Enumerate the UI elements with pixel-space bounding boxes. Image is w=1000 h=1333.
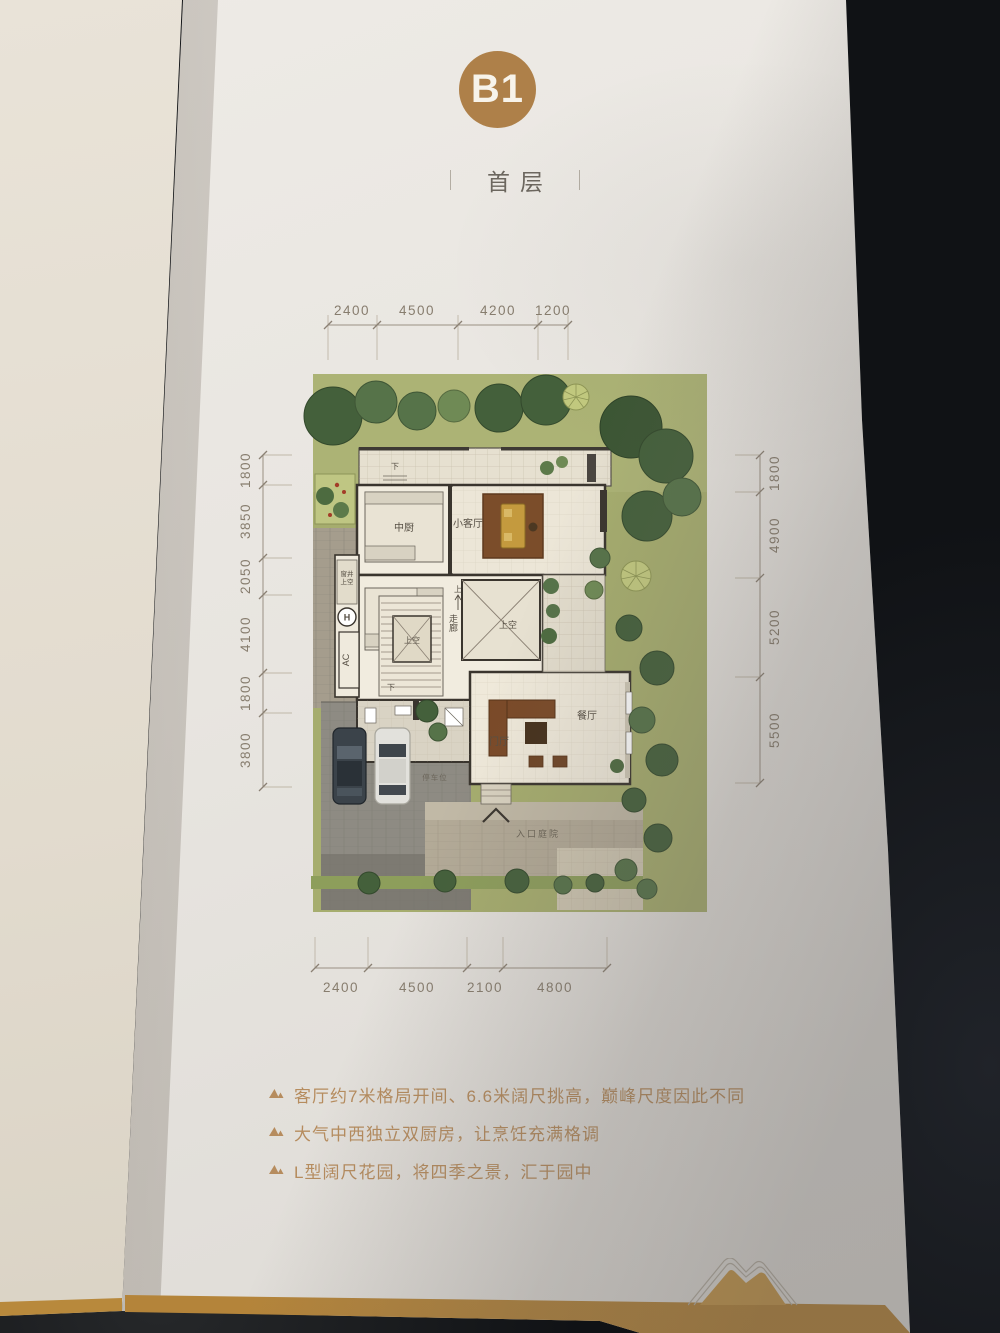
small-living-label: 小客厅: [453, 517, 483, 530]
dim-right-2: 4900: [767, 517, 782, 553]
bullet-item-3: L型阔尺花园，将四季之景，汇于园中: [268, 1158, 828, 1179]
mountain-bullet-icon: [268, 1087, 284, 1098]
terrace-down-label: 下: [391, 462, 399, 471]
window-well-label-2: 上空: [341, 577, 355, 586]
mountain-logo: [688, 1258, 800, 1306]
dim-bottom-3: 2100: [467, 980, 503, 995]
dim-bottom-2: 4500: [399, 980, 435, 995]
dim-top-2: 4500: [399, 303, 435, 318]
unit-badge-label: B1: [471, 67, 524, 112]
small-living-room: 小客厅: [452, 487, 607, 573]
dim-left-4: 4100: [238, 616, 253, 652]
dim-left-1: 1800: [238, 452, 253, 488]
dining-label: 餐厅: [577, 709, 597, 722]
parking-label: 停车位: [422, 772, 448, 782]
white-car: [375, 728, 410, 804]
chinese-kitchen-label: 中厨: [394, 521, 414, 534]
mountain-bullet-icon: [268, 1163, 284, 1174]
bath-laundry: [357, 700, 470, 762]
planting-box: [315, 474, 355, 524]
dim-top-1: 2400: [334, 303, 370, 318]
foyer-label: 门厅: [489, 735, 509, 748]
photo-of-brochure-page: B1 首层: [0, 0, 1000, 1333]
dim-left-3: 2050: [238, 558, 253, 594]
floor-title-label: 首层: [477, 163, 553, 197]
bullet-text-3: L型阔尺花园，将四季之景，汇于园中: [294, 1158, 592, 1183]
terrace: 下: [359, 447, 611, 486]
ac-label: AC: [341, 653, 351, 666]
mountain-bullet-icon: [268, 1125, 284, 1136]
bullet-item-2: 大气中西独立双厨房，让烹饪充满格调: [268, 1120, 828, 1141]
stair-down-label: 下: [387, 683, 395, 692]
dim-left-2: 3850: [238, 503, 253, 539]
hoist-label: H: [344, 613, 351, 623]
floorplan-drawing: 2400 4500 4200 1200 2400 4500 2100 4800 …: [230, 285, 810, 1010]
dim-bottom-1: 2400: [323, 980, 359, 995]
title-left-bar: [450, 170, 451, 190]
chinese-kitchen: 中厨: [365, 492, 443, 562]
dim-top-3: 4200: [480, 303, 516, 318]
corridor-up-label: 上: [454, 585, 462, 594]
bullet-text-2: 大气中西独立双厨房，让烹饪充满格调: [294, 1120, 600, 1145]
title-right-bar: [579, 170, 580, 190]
floor-title: 首层: [415, 163, 615, 197]
dim-left-5: 1800: [238, 675, 253, 711]
unit-badge: B1: [459, 51, 536, 128]
bullet-text-1: 客厅约7米格局开间、6.6米阔尺挑高，巅峰尺度因此不同: [294, 1082, 745, 1107]
entry-court-label: 入口庭院: [516, 828, 560, 839]
dim-right-4: 5500: [767, 712, 782, 748]
dim-right-3: 5200: [767, 609, 782, 645]
dim-left-6: 3800: [238, 732, 253, 768]
dim-bottom-4: 4800: [537, 980, 573, 995]
corridor-label: 走廊: [448, 614, 458, 633]
dark-car: [333, 728, 366, 804]
living-void-label: 上空: [499, 619, 517, 630]
foyer-dining: 餐厅 门厅: [472, 674, 632, 782]
stair-void-label: 上空: [404, 635, 420, 645]
fan-palm-2: [621, 561, 651, 591]
window-well-label-1: 窗井: [341, 569, 355, 578]
dim-right-1: 1800: [767, 455, 782, 491]
bullet-item-1: 客厅约7米格局开间、6.6米阔尺挑高，巅峰尺度因此不同: [268, 1082, 828, 1103]
living-void: 上空: [462, 580, 540, 660]
stairs: 上空 下: [379, 596, 443, 696]
dim-top-4: 1200: [535, 303, 571, 318]
feature-bullet-list: 客厅约7米格局开间、6.6米阔尺挑高，巅峰尺度因此不同 大气中西独立双厨房，让烹…: [268, 1082, 828, 1196]
fan-palm: [563, 384, 589, 410]
